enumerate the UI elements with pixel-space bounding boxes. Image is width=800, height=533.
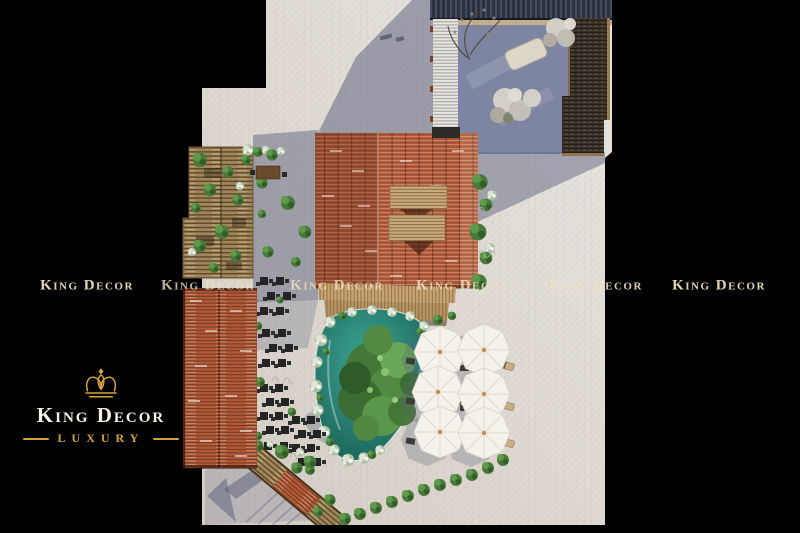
gray-tile-roof	[433, 19, 458, 145]
watermark: King Decor	[161, 278, 255, 295]
left-dash	[23, 438, 49, 440]
roof-vent	[432, 127, 460, 138]
watermark: King Decor	[40, 278, 134, 295]
blossom-tree	[543, 18, 576, 47]
logo-title: King Decor	[18, 404, 184, 426]
brand-logo: King Decor LUXURY	[18, 366, 184, 446]
site-plan-render	[0, 0, 800, 533]
thatch-dormer	[390, 186, 447, 209]
right-dash	[153, 438, 179, 440]
watermark: King Decor	[290, 278, 384, 295]
crown-icon	[77, 366, 125, 402]
umbrella	[458, 407, 510, 459]
southwest-building	[183, 288, 257, 469]
watermark: King Decor	[549, 278, 643, 295]
patio-table	[256, 166, 280, 179]
logo-subtitle: LUXURY	[58, 431, 145, 446]
thatch-dormer	[389, 215, 445, 241]
watermark: King Decor	[672, 278, 766, 295]
watermark: King Decor	[416, 278, 510, 295]
poster-canvas: King DecorKing DecorKing DecorKing Decor…	[0, 0, 800, 533]
umbrella-terrace	[399, 324, 515, 467]
main-restaurant-building	[315, 127, 478, 326]
logo-subtitle-row: LUXURY	[18, 431, 184, 446]
